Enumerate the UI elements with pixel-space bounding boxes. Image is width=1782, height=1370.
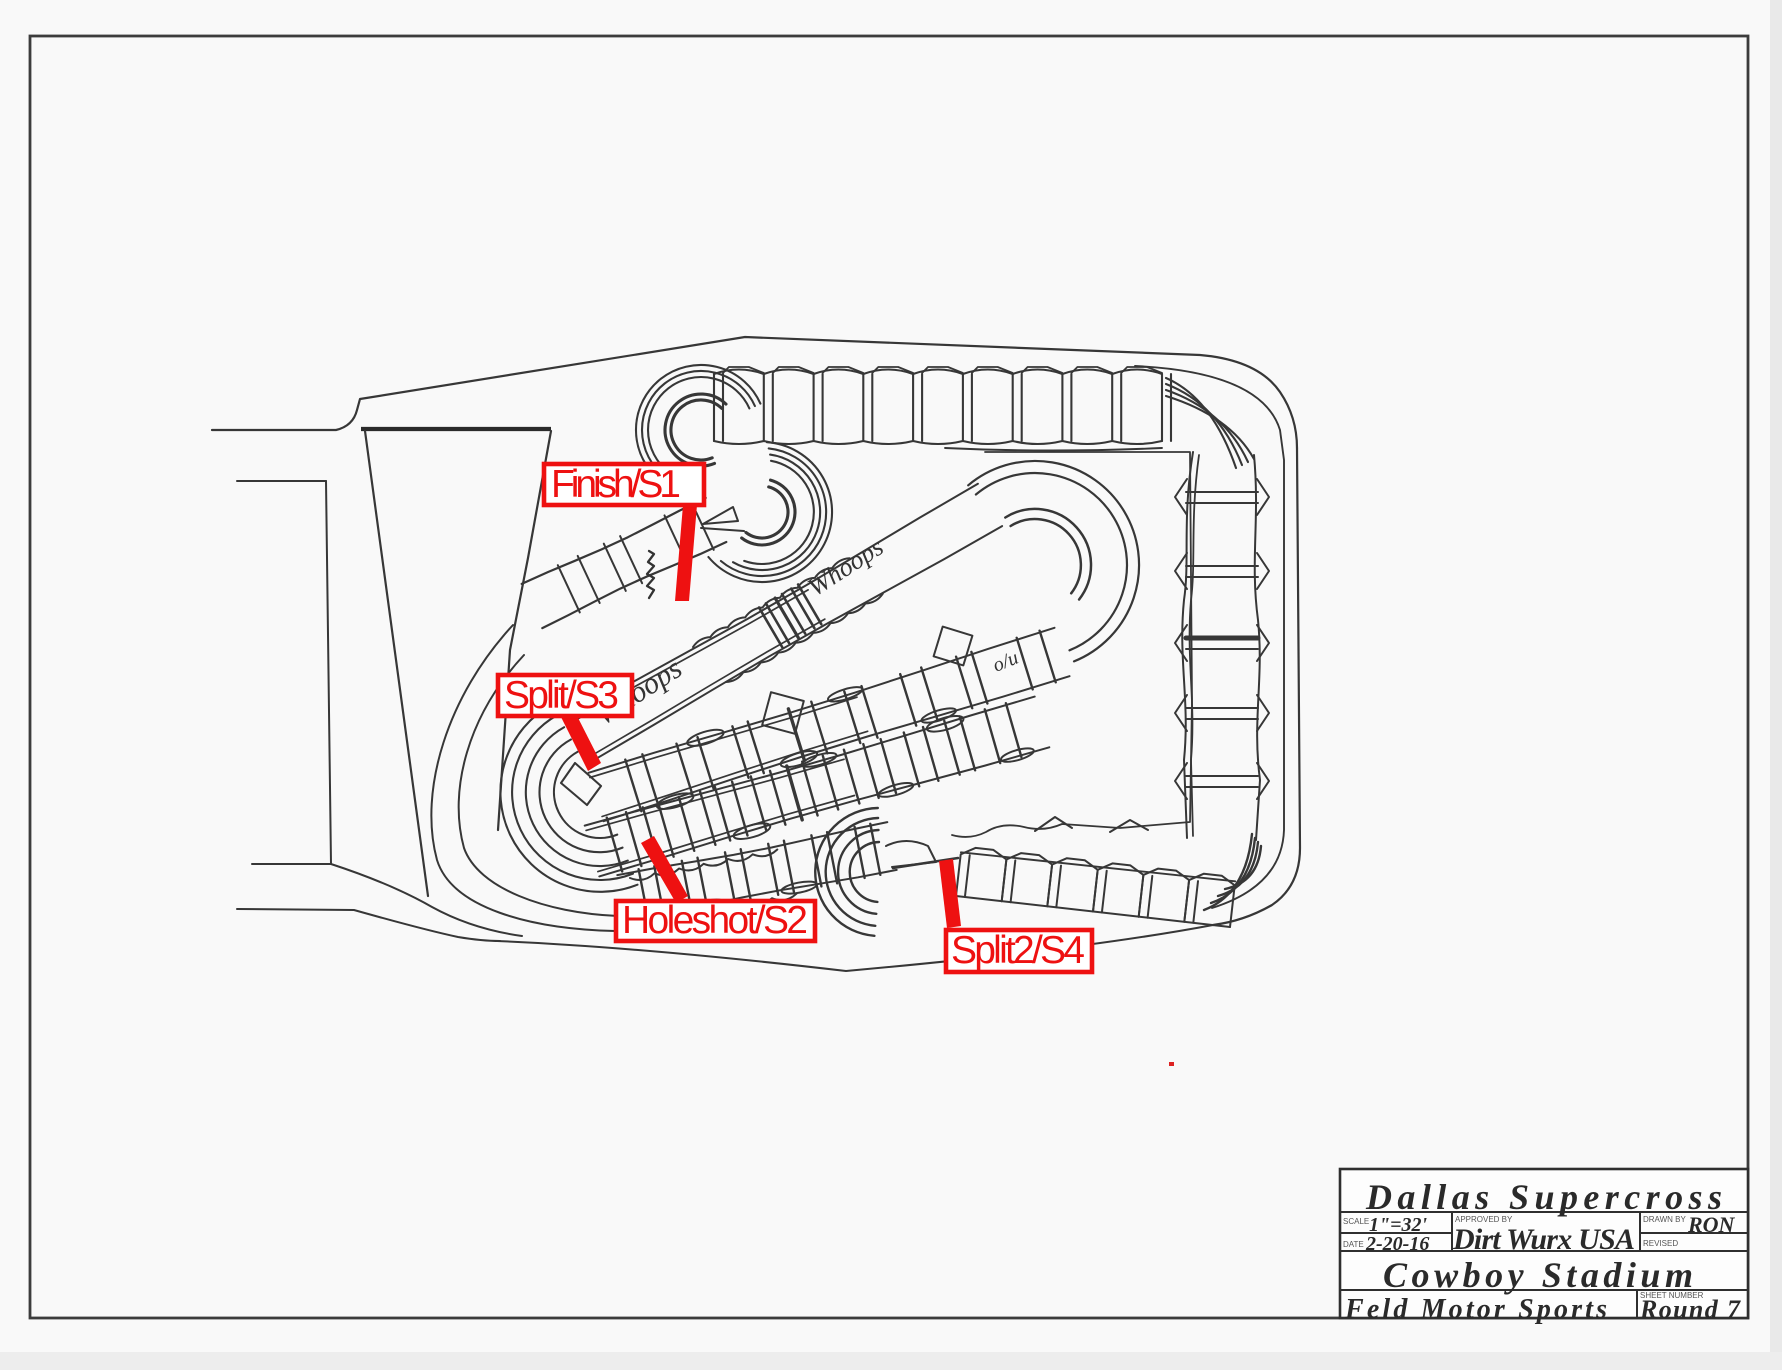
svg-text:2-20-16: 2-20-16 [1365, 1233, 1429, 1255]
svg-text:RON: RON [1687, 1212, 1736, 1237]
svg-text:Finish/S1: Finish/S1 [551, 463, 681, 506]
svg-text:Split2/S4: Split2/S4 [951, 929, 1085, 972]
svg-text:DATE: DATE [1343, 1240, 1364, 1249]
svg-text:DRAWN BY: DRAWN BY [1643, 1215, 1686, 1224]
svg-text:Dirt Wurx USA: Dirt Wurx USA [1452, 1223, 1635, 1256]
svg-text:REVISED: REVISED [1643, 1239, 1678, 1248]
svg-text:Split/S3: Split/S3 [504, 674, 619, 717]
svg-text:Holeshot/S2: Holeshot/S2 [622, 899, 808, 942]
svg-text:SCALE: SCALE [1343, 1217, 1369, 1226]
